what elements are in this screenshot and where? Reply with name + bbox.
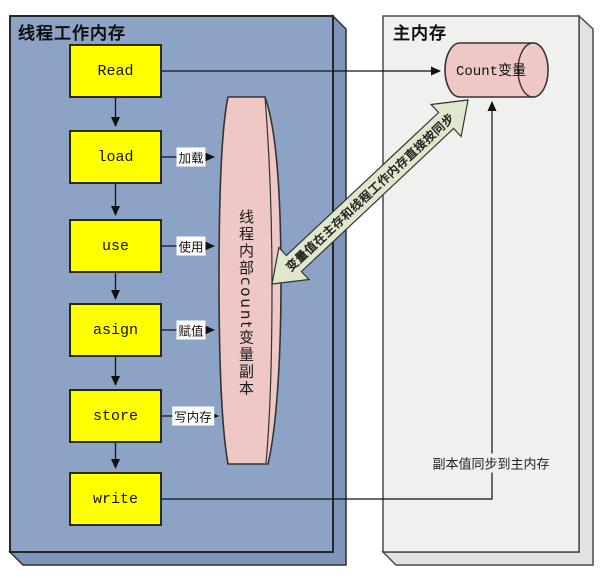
edge-label-store: 写内存	[172, 407, 214, 426]
flow-box-label: asign	[93, 322, 138, 339]
flow-box-write: write	[69, 472, 162, 526]
flow-box-label: write	[93, 491, 138, 508]
flow-box-read: Read	[69, 44, 162, 98]
main-memory-title: 主内存	[393, 19, 447, 44]
jmm-diagram: 线程工作内存 主内存 Read load use asign store wri…	[0, 0, 601, 578]
thread-copy-cylinder-label: 线程内部count变量副本	[236, 209, 257, 397]
thread-memory-panel	[10, 16, 333, 552]
flow-box-label: store	[93, 408, 138, 425]
edge-label-asign: 赋值	[176, 321, 205, 340]
flow-box-store: store	[69, 389, 162, 443]
thread-memory-title: 线程工作内存	[18, 19, 126, 44]
edge-label-use: 使用	[176, 237, 205, 256]
flow-box-label: Read	[97, 63, 133, 80]
count-cylinder-label: Count变量	[456, 60, 526, 80]
flow-box-label: use	[102, 238, 129, 255]
copy-sync-annotation: 副本值同步到主内存	[430, 454, 551, 473]
edge-label-load: 加载	[176, 148, 205, 167]
flow-box-load: load	[69, 130, 162, 184]
flow-box-asign: asign	[69, 303, 162, 357]
flow-box-use: use	[69, 219, 162, 273]
flow-box-label: load	[97, 149, 133, 166]
